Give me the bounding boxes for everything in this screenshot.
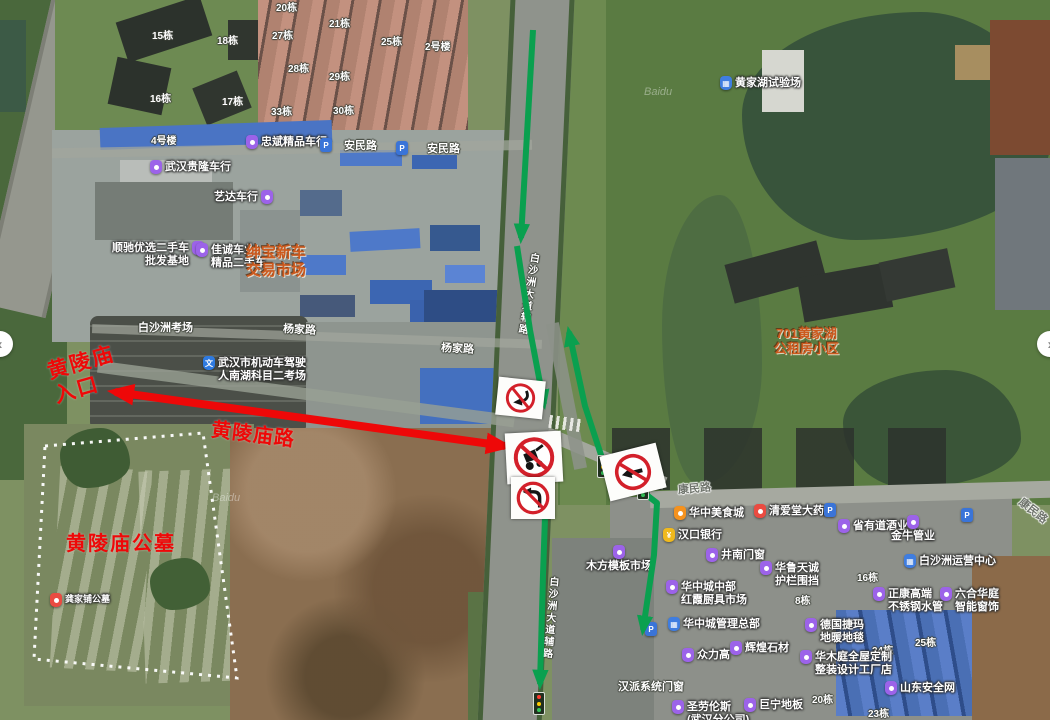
satellite-map: 15栋18栋20栋27栋21栋28栋29栋16栋17栋33栋30栋25栋2号楼4…	[0, 0, 1050, 720]
traffic-light-icon	[533, 692, 545, 715]
green-route-arrow-southbound-approach	[521, 30, 533, 238]
no-right-curve-sign	[495, 377, 546, 420]
no-left-turn-sign	[511, 477, 555, 519]
annotation-overlay	[0, 0, 1050, 720]
red-closure-arrow-huanglingmiao-road-closed	[115, 392, 505, 446]
cemetery-dotted-boundary	[34, 433, 237, 678]
